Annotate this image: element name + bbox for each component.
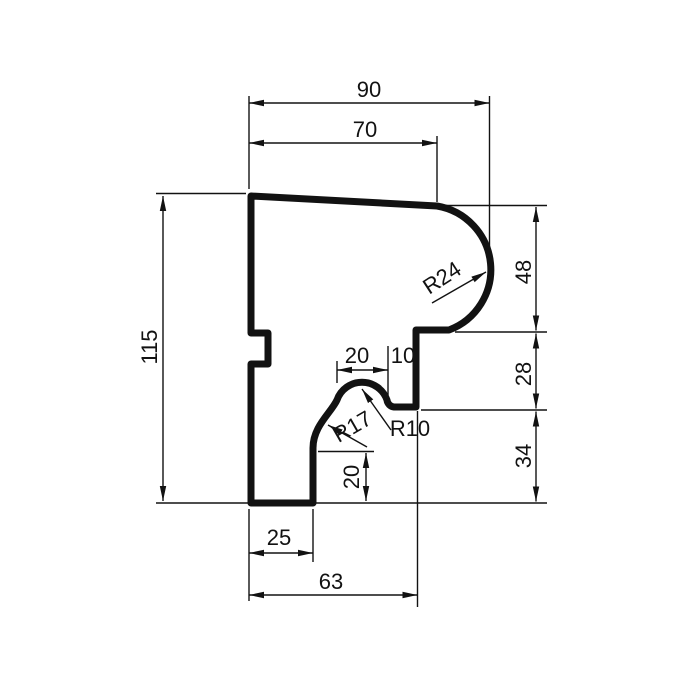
dim-label-20-step: 20 — [339, 465, 364, 489]
dim-label-20-top: 20 — [345, 343, 369, 368]
radius-label-r17: R17 — [329, 406, 376, 448]
dim-label-48: 48 — [511, 260, 536, 284]
radius-label-r24: R24 — [418, 256, 465, 299]
dim-label-10: 10 — [391, 343, 415, 368]
dim-label-115: 115 — [137, 329, 162, 364]
dim-label-90: 90 — [357, 77, 381, 102]
dim-label-63: 63 — [319, 569, 343, 594]
dimension-labels: 90 70 115 48 28 34 20 10 20 25 63 R24 R1… — [137, 77, 536, 594]
technical-drawing: 90 70 115 48 28 34 20 10 20 25 63 R24 R1… — [0, 0, 686, 686]
profile-outline — [251, 196, 491, 503]
dim-label-28: 28 — [511, 362, 536, 386]
dim-label-25: 25 — [267, 525, 291, 550]
dim-label-34: 34 — [511, 444, 536, 468]
dim-label-70: 70 — [353, 117, 377, 142]
radius-label-r10: R10 — [390, 416, 430, 441]
drawing-canvas: 90 70 115 48 28 34 20 10 20 25 63 R24 R1… — [0, 0, 686, 686]
